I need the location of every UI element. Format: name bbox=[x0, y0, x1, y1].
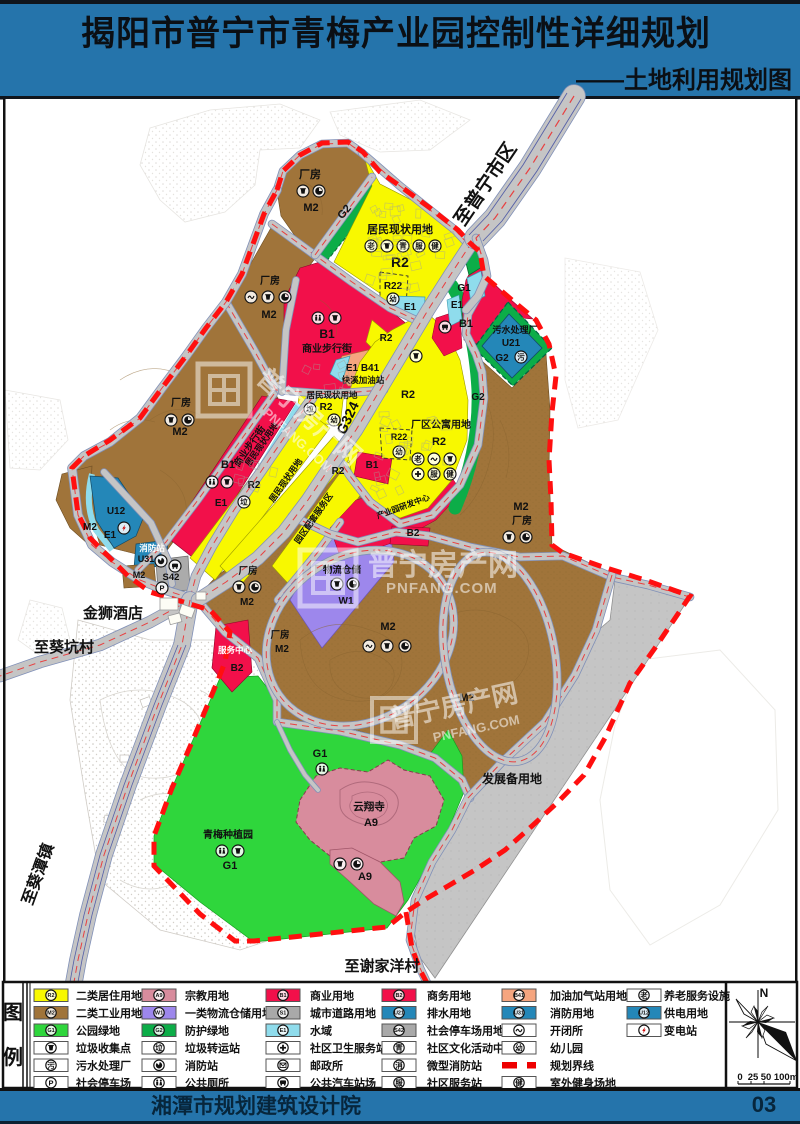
svg-text:R2: R2 bbox=[401, 389, 415, 401]
svg-text:E1: E1 bbox=[404, 302, 417, 313]
svg-text:B1: B1 bbox=[459, 318, 473, 330]
svg-text:B2: B2 bbox=[407, 528, 420, 539]
svg-text:G1: G1 bbox=[223, 860, 238, 872]
svg-text:W1: W1 bbox=[155, 1011, 163, 1017]
svg-text:B41: B41 bbox=[361, 363, 380, 374]
svg-text:E1: E1 bbox=[280, 1028, 287, 1034]
svg-text:污水处理厂: 污水处理厂 bbox=[492, 324, 537, 335]
svg-text:100m: 100m bbox=[774, 1072, 798, 1083]
svg-text:G2: G2 bbox=[471, 392, 485, 403]
svg-text:垃圾收集点: 垃圾收集点 bbox=[76, 1041, 131, 1055]
svg-text:A9: A9 bbox=[358, 871, 372, 883]
svg-text:B2: B2 bbox=[395, 993, 402, 999]
svg-text:老: 老 bbox=[413, 454, 422, 464]
svg-text:M2: M2 bbox=[513, 501, 528, 513]
svg-text:污: 污 bbox=[47, 1060, 55, 1070]
svg-text:R2: R2 bbox=[432, 436, 446, 448]
svg-text:水域: 水域 bbox=[310, 1023, 332, 1037]
svg-text:M2: M2 bbox=[133, 570, 146, 580]
svg-text:公共厕所: 公共厕所 bbox=[185, 1076, 229, 1090]
svg-text:服: 服 bbox=[415, 242, 423, 251]
svg-text:金狮酒店: 金狮酒店 bbox=[82, 604, 143, 622]
svg-text:供电用地: 供电用地 bbox=[663, 1006, 708, 1020]
svg-text:垃: 垃 bbox=[155, 1042, 163, 1052]
svg-text:厂房: 厂房 bbox=[238, 565, 257, 577]
svg-text:垃: 垃 bbox=[240, 497, 248, 507]
svg-text:云翔寺: 云翔寺 bbox=[353, 800, 385, 813]
svg-text:健: 健 bbox=[431, 241, 439, 251]
svg-text:变电站: 变电站 bbox=[664, 1023, 697, 1037]
svg-text:U31: U31 bbox=[138, 554, 155, 564]
svg-text:B1: B1 bbox=[319, 327, 335, 341]
svg-text:服: 服 bbox=[395, 1078, 403, 1087]
svg-text:U21: U21 bbox=[502, 338, 521, 349]
svg-text:一类物流仓储用地: 一类物流仓储用地 bbox=[185, 1006, 273, 1020]
svg-text:M2: M2 bbox=[380, 621, 395, 633]
svg-text:揭阳市普宁市青梅产业园控制性详细规划: 揭阳市普宁市青梅产业园控制性详细规划 bbox=[81, 14, 711, 53]
svg-text:公共汽车站场: 公共汽车站场 bbox=[310, 1076, 376, 1090]
svg-text:U31: U31 bbox=[514, 1011, 524, 1017]
svg-text:PNFANG.COM: PNFANG.COM bbox=[386, 580, 498, 597]
svg-text:商业用地: 商业用地 bbox=[310, 988, 354, 1002]
svg-text:R22: R22 bbox=[391, 432, 408, 442]
svg-text:加油加气站用地: 加油加气站用地 bbox=[549, 988, 627, 1002]
svg-text:社会停车场用地: 社会停车场用地 bbox=[426, 1023, 504, 1037]
svg-text:宗教用地: 宗教用地 bbox=[185, 988, 229, 1002]
svg-text:E1: E1 bbox=[215, 498, 228, 509]
svg-text:S1: S1 bbox=[280, 1011, 287, 1017]
svg-text:消防站: 消防站 bbox=[185, 1058, 218, 1072]
svg-text:U21: U21 bbox=[394, 1011, 404, 1017]
svg-text:至葵坑村: 至葵坑村 bbox=[34, 638, 94, 656]
svg-text:社区卫生服务站: 社区卫生服务站 bbox=[309, 1041, 387, 1055]
svg-text:邮政所: 邮政所 bbox=[310, 1058, 343, 1072]
svg-text:N: N bbox=[760, 986, 769, 1000]
svg-text:规划界线: 规划界线 bbox=[550, 1058, 594, 1072]
svg-text:R2: R2 bbox=[47, 993, 54, 999]
svg-text:养老服务设施: 养老服务设施 bbox=[663, 988, 730, 1002]
svg-text:图: 图 bbox=[3, 1001, 23, 1024]
svg-text:S42: S42 bbox=[394, 1028, 404, 1034]
svg-text:社区服务站: 社区服务站 bbox=[426, 1076, 482, 1090]
svg-text:M2: M2 bbox=[275, 644, 289, 655]
svg-text:微型消防站: 微型消防站 bbox=[426, 1058, 482, 1072]
svg-text:A9: A9 bbox=[155, 993, 162, 999]
svg-text:二类居住用地: 二类居住用地 bbox=[76, 988, 142, 1002]
svg-text:消防站: 消防站 bbox=[139, 543, 165, 553]
svg-text:R2: R2 bbox=[380, 333, 393, 344]
svg-text:B1: B1 bbox=[279, 993, 286, 999]
svg-text:健: 健 bbox=[515, 1077, 523, 1087]
svg-text:公园绿地: 公园绿地 bbox=[76, 1023, 120, 1037]
svg-text:E1: E1 bbox=[346, 363, 359, 374]
svg-text:商务用地: 商务用地 bbox=[427, 988, 471, 1002]
svg-text:居民现状用地: 居民现状用地 bbox=[305, 390, 358, 400]
svg-text:R2: R2 bbox=[332, 466, 345, 477]
svg-text:S42: S42 bbox=[163, 572, 180, 583]
svg-text:开闭所: 开闭所 bbox=[550, 1023, 583, 1037]
svg-text:垃圾转运站: 垃圾转运站 bbox=[185, 1041, 240, 1055]
svg-text:B1: B1 bbox=[366, 460, 379, 471]
svg-text:A9: A9 bbox=[364, 817, 378, 829]
svg-text:03: 03 bbox=[752, 1092, 776, 1117]
svg-text:服务中心: 服务中心 bbox=[218, 645, 253, 655]
svg-text:P: P bbox=[48, 1078, 53, 1087]
svg-text:M2: M2 bbox=[83, 522, 97, 533]
svg-text:50: 50 bbox=[761, 1072, 772, 1083]
svg-text:排水用地: 排水用地 bbox=[427, 1006, 471, 1020]
svg-text:M2: M2 bbox=[172, 426, 187, 438]
svg-text:湘潭市规划建筑设计院: 湘潭市规划建筑设计院 bbox=[151, 1094, 361, 1118]
svg-text:至谢家洋村: 至谢家洋村 bbox=[344, 957, 419, 975]
svg-text:室外健身场地: 室外健身场地 bbox=[550, 1076, 616, 1090]
svg-text:幼儿园: 幼儿园 bbox=[550, 1041, 583, 1055]
svg-text:厂房: 厂房 bbox=[171, 396, 191, 409]
svg-text:25: 25 bbox=[748, 1072, 759, 1083]
svg-text:G2: G2 bbox=[495, 353, 509, 364]
svg-text:B1: B1 bbox=[221, 459, 235, 471]
svg-text:幼: 幼 bbox=[389, 294, 397, 304]
svg-text:M2: M2 bbox=[47, 1011, 55, 1017]
svg-text:G2: G2 bbox=[155, 1028, 162, 1034]
svg-text:社会停车场: 社会停车场 bbox=[75, 1076, 131, 1090]
svg-text:厂房: 厂房 bbox=[512, 514, 532, 527]
svg-text:防护绿地: 防护绿地 bbox=[185, 1023, 229, 1037]
svg-text:发展备用地: 发展备用地 bbox=[481, 771, 542, 786]
svg-text:青梅种植园: 青梅种植园 bbox=[203, 828, 253, 841]
svg-text:商业步行街: 商业步行街 bbox=[302, 342, 352, 355]
svg-text:老: 老 bbox=[639, 990, 648, 1000]
svg-text:厂房: 厂房 bbox=[299, 167, 321, 181]
svg-text:幼: 幼 bbox=[515, 1042, 523, 1052]
svg-text:污水处理厂: 污水处理厂 bbox=[76, 1058, 131, 1072]
svg-text:M2: M2 bbox=[240, 597, 254, 608]
svg-text:二类工业用地: 二类工业用地 bbox=[76, 1006, 142, 1020]
svg-text:G1: G1 bbox=[47, 1028, 54, 1034]
svg-text:B41: B41 bbox=[514, 993, 524, 999]
svg-text:B2: B2 bbox=[231, 663, 244, 674]
svg-text:厂房: 厂房 bbox=[270, 629, 289, 641]
svg-text:E1: E1 bbox=[104, 530, 117, 541]
svg-text:P: P bbox=[159, 584, 164, 593]
svg-text:城市道路用地: 城市道路用地 bbox=[310, 1006, 376, 1020]
svg-text:青: 青 bbox=[395, 1042, 403, 1052]
svg-text:E1: E1 bbox=[451, 300, 464, 311]
svg-text:污: 污 bbox=[517, 352, 525, 362]
svg-text:普宁房产网: 普宁房产网 bbox=[368, 548, 518, 582]
svg-text:U12: U12 bbox=[639, 1011, 649, 1017]
svg-text:G1: G1 bbox=[313, 748, 328, 760]
svg-text:健: 健 bbox=[446, 469, 454, 479]
svg-text:消: 消 bbox=[395, 1060, 403, 1070]
svg-text:G1: G1 bbox=[457, 283, 471, 294]
svg-text:厂房: 厂房 bbox=[260, 274, 280, 287]
svg-text:U12: U12 bbox=[107, 506, 126, 517]
svg-text:M2: M2 bbox=[261, 309, 276, 321]
svg-text:——土地利用规划图: ——土地利用规划图 bbox=[576, 67, 792, 94]
svg-text:M2: M2 bbox=[303, 202, 318, 214]
svg-text:消防用地: 消防用地 bbox=[550, 1006, 594, 1020]
svg-text:例: 例 bbox=[3, 1045, 23, 1069]
